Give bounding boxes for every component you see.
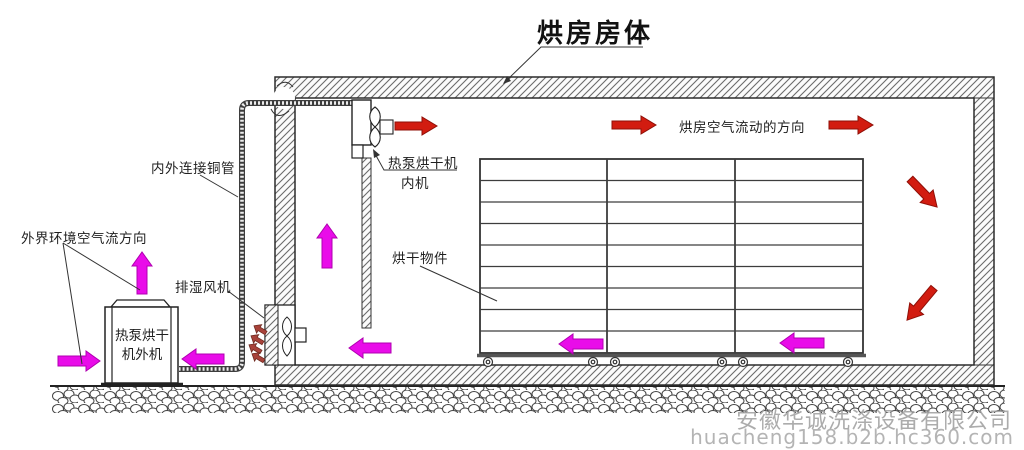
wall-right xyxy=(974,98,994,365)
exhaust-fan-label: 排湿风机 xyxy=(175,276,231,296)
exhaust-louver xyxy=(265,305,278,365)
indoor-unit-label-line1: 热泵烘干机 xyxy=(388,152,458,172)
indoor-unit-leader-arrowhead-icon xyxy=(373,149,380,158)
ambient-air-arrow-up-icon xyxy=(132,252,152,294)
diagram-canvas xyxy=(0,0,1024,450)
indoor-unit xyxy=(352,100,393,158)
return-air-arrow-left-icon xyxy=(349,338,391,358)
outdoor-unit-label-line2: 机外机 xyxy=(111,343,173,363)
ambient-air-arrow-right-icon xyxy=(58,351,100,371)
exhaust-fan xyxy=(265,305,306,365)
indoor-unit-label-line2: 内机 xyxy=(401,172,429,192)
indoor-fan-icon xyxy=(370,107,393,147)
hot-air-arrow-right-icon xyxy=(829,116,873,134)
return-air-arrow-up-icon xyxy=(317,224,337,268)
exhaust-fan-leader xyxy=(228,291,264,318)
watermark-url: huacheng158.b2b.hc360.com xyxy=(690,425,1014,449)
air-baffle xyxy=(362,158,371,328)
copper-pipe-label: 内外连接铜管 xyxy=(151,157,235,177)
diagram-title: 烘房房体 xyxy=(537,13,653,50)
drying-items-label: 烘干物件 xyxy=(392,247,448,267)
pipe-leader xyxy=(200,175,238,197)
drying-room-diagram: 烘房房体 烘房空气流动的方向 热泵烘干机 内机 内外连接铜管 外界环境空气流方向… xyxy=(0,0,1024,450)
hot-air-arrow-right-icon xyxy=(395,117,437,135)
room-airflow-label: 烘房空气流动的方向 xyxy=(679,116,805,136)
hot-air-arrow-right-icon xyxy=(612,116,656,134)
wall-top xyxy=(275,77,994,98)
room-floor xyxy=(275,365,994,385)
shelf-rack xyxy=(477,159,866,356)
hot-air-arrow-down-left-icon xyxy=(900,282,941,326)
exhaust-fan-hub xyxy=(295,328,306,342)
hot-air-arrow-down-right-icon xyxy=(904,173,944,214)
ambient-airflow-label: 外界环境空气流方向 xyxy=(21,227,147,247)
outdoor-unit-label-line1: 热泵烘干 xyxy=(111,324,173,344)
